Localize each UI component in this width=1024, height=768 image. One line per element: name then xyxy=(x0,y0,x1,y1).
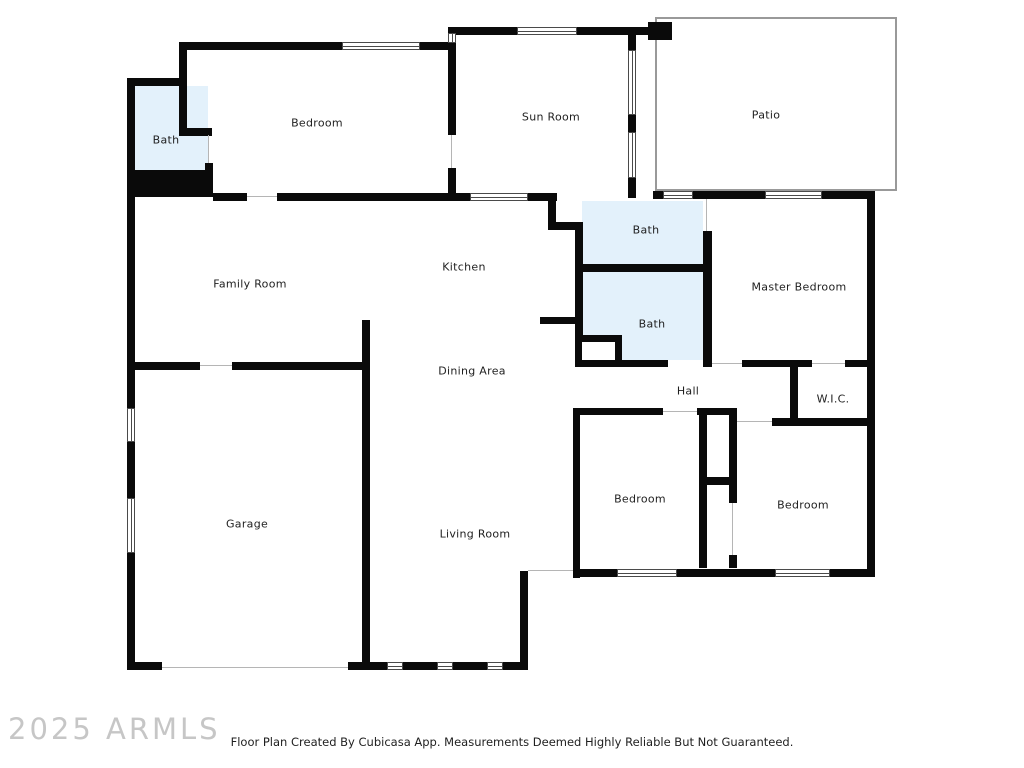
window xyxy=(470,193,528,201)
wall xyxy=(127,190,135,408)
window xyxy=(628,50,636,115)
door-opening xyxy=(663,411,697,412)
room-label-bath-lower: Bath xyxy=(639,318,666,331)
wall xyxy=(867,191,875,577)
wall xyxy=(703,231,712,367)
wall xyxy=(697,408,737,415)
door-opening xyxy=(451,135,452,168)
wall xyxy=(127,442,135,498)
window xyxy=(387,662,403,670)
room-label-bedroom-top: Bedroom xyxy=(291,117,343,130)
wall xyxy=(573,408,663,415)
wall xyxy=(127,362,200,370)
wall xyxy=(540,317,575,324)
wall xyxy=(729,415,737,503)
room-label-bedroom-left: Bedroom xyxy=(614,493,666,506)
room-label-garage: Garage xyxy=(226,518,268,531)
window xyxy=(663,191,693,199)
wall xyxy=(742,360,812,367)
room-label-patio: Patio xyxy=(752,109,780,122)
window xyxy=(342,42,420,50)
bath-alcove xyxy=(582,342,615,360)
room-label-dining-area: Dining Area xyxy=(438,365,506,378)
window xyxy=(437,662,453,670)
wall xyxy=(127,170,213,197)
wall xyxy=(772,418,875,426)
room-label-master-bedroom: Master Bedroom xyxy=(751,281,846,294)
window xyxy=(487,662,503,670)
door-opening xyxy=(247,196,277,197)
door-opening xyxy=(732,503,733,555)
window xyxy=(517,27,577,35)
wall xyxy=(575,335,622,342)
room-label-bedroom-right: Bedroom xyxy=(777,499,829,512)
floor-plan-canvas: BathBedroomSun RoomPatioBathBathMaster B… xyxy=(0,0,1024,768)
wall xyxy=(790,360,798,424)
wall xyxy=(179,42,187,135)
wall xyxy=(232,362,368,370)
window xyxy=(127,498,135,553)
door-opening xyxy=(812,363,845,364)
wall xyxy=(648,22,672,40)
door-opening xyxy=(737,421,772,422)
wall xyxy=(729,555,737,568)
door-opening xyxy=(208,135,209,163)
wall xyxy=(362,320,370,670)
wall xyxy=(845,360,875,367)
room-label-wic: W.I.C. xyxy=(817,393,850,406)
wall xyxy=(520,571,528,669)
floor-plan-page: BathBedroomSun RoomPatioBathBathMaster B… xyxy=(0,0,1024,768)
window xyxy=(448,33,456,43)
door-opening xyxy=(162,667,348,668)
room-label-bath-upper: Bath xyxy=(633,224,660,237)
window xyxy=(617,569,677,577)
wall xyxy=(127,553,135,670)
wall xyxy=(575,264,712,272)
door-opening xyxy=(712,363,742,364)
room-label-bath-top-left: Bath xyxy=(153,134,180,147)
door-opening xyxy=(528,570,573,571)
wall xyxy=(213,193,247,201)
room-label-kitchen: Kitchen xyxy=(442,261,485,274)
room-label-sun-room: Sun Room xyxy=(522,111,580,124)
window xyxy=(765,191,822,199)
footer-disclaimer: Floor Plan Created By Cubicasa App. Meas… xyxy=(0,735,1024,749)
wall xyxy=(575,360,668,367)
wall xyxy=(699,415,707,568)
wall xyxy=(573,408,580,578)
room-label-living-room: Living Room xyxy=(440,528,511,541)
wall xyxy=(127,78,187,86)
wall xyxy=(205,163,213,173)
window xyxy=(775,569,830,577)
room-label-family-room: Family Room xyxy=(213,278,287,291)
room-label-hall: Hall xyxy=(677,385,699,398)
window xyxy=(628,132,636,178)
door-opening xyxy=(200,365,232,366)
patio-outline xyxy=(655,17,897,191)
door-opening xyxy=(706,199,707,231)
wall xyxy=(448,33,456,135)
window xyxy=(127,408,135,442)
